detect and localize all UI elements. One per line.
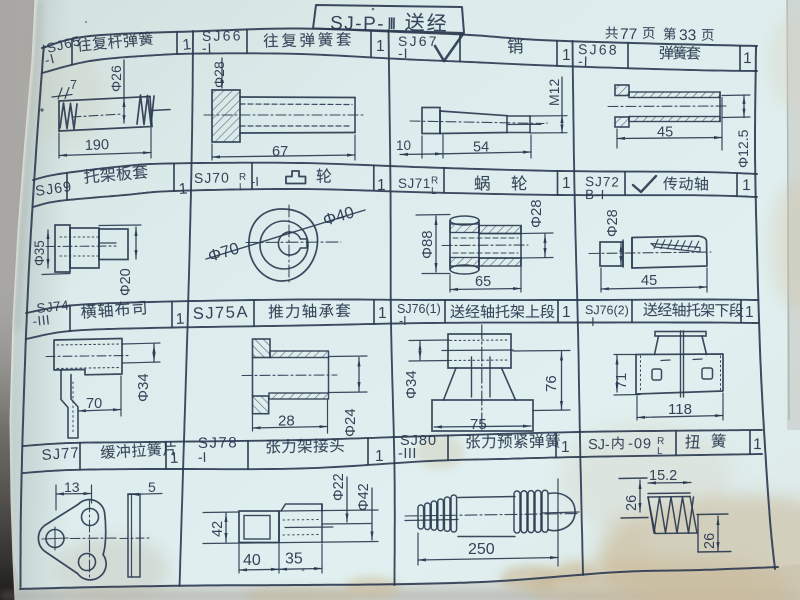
svg-text:1: 1 — [178, 180, 188, 198]
svg-text:SJ71: SJ71 — [398, 176, 431, 191]
svg-text:-I: -I — [202, 40, 213, 56]
svg-text:-I: -I — [398, 45, 409, 61]
svg-text:Φ12.5: Φ12.5 — [735, 129, 751, 168]
svg-text:1: 1 — [377, 177, 386, 194]
svg-text:R: R — [431, 176, 438, 187]
svg-text:Φ35: Φ35 — [32, 240, 47, 266]
svg-text:SJ77: SJ77 — [41, 444, 80, 464]
svg-text:33: 33 — [679, 27, 696, 44]
svg-text:1: 1 — [562, 304, 571, 321]
svg-text:26: 26 — [624, 495, 640, 511]
svg-text:250: 250 — [468, 541, 495, 558]
svg-text:-I: -I — [251, 174, 259, 189]
svg-text:1: 1 — [170, 450, 179, 467]
svg-text:76: 76 — [543, 375, 560, 392]
svg-text:7: 7 — [70, 78, 77, 92]
svg-text:-09: -09 — [628, 436, 652, 452]
svg-text:1: 1 — [182, 36, 192, 54]
svg-text:SJ-P-: SJ-P- — [330, 13, 385, 35]
svg-text:77: 77 — [620, 26, 637, 43]
svg-text:Φ34: Φ34 — [135, 373, 152, 402]
svg-text:1: 1 — [742, 177, 751, 194]
svg-text:1: 1 — [378, 305, 387, 322]
svg-text:L: L — [657, 446, 663, 457]
svg-text:-III: -III — [398, 446, 417, 462]
svg-text:Φ88: Φ88 — [419, 230, 436, 259]
svg-text:1: 1 — [743, 50, 752, 67]
svg-text:35: 35 — [285, 551, 303, 568]
svg-text:13: 13 — [64, 479, 80, 495]
svg-text:Φ42: Φ42 — [356, 483, 372, 511]
svg-text:SJ75A: SJ75A — [193, 303, 250, 323]
svg-text:15.2: 15.2 — [649, 468, 677, 484]
svg-text:L: L — [239, 182, 245, 193]
svg-text:Φ26: Φ26 — [108, 65, 124, 92]
svg-text:54: 54 — [473, 140, 489, 156]
svg-text:1: 1 — [561, 439, 570, 456]
svg-text:SJ-: SJ- — [588, 437, 610, 453]
svg-text:118: 118 — [668, 401, 692, 418]
svg-text:L: L — [431, 186, 437, 197]
svg-text:71: 71 — [614, 373, 630, 389]
svg-text:42: 42 — [210, 521, 226, 537]
svg-text:45: 45 — [657, 125, 673, 141]
svg-text:M12: M12 — [546, 79, 562, 106]
svg-text:45: 45 — [641, 273, 657, 289]
svg-text:5: 5 — [148, 479, 156, 495]
svg-text:-I: -I — [578, 53, 589, 69]
svg-text:Φ28: Φ28 — [605, 209, 621, 237]
svg-text:67: 67 — [272, 144, 288, 160]
svg-text:Φ22: Φ22 — [331, 473, 347, 501]
svg-text:Φ34: Φ34 — [403, 370, 420, 399]
svg-text:70: 70 — [86, 396, 102, 412]
svg-text:Φ24: Φ24 — [342, 408, 359, 437]
svg-text:75: 75 — [470, 416, 487, 433]
svg-text:SJ70: SJ70 — [194, 169, 230, 186]
svg-text:B-I: B-I — [585, 187, 606, 202]
svg-text:1: 1 — [753, 436, 762, 453]
svg-text:40: 40 — [243, 552, 261, 569]
svg-text:1: 1 — [562, 175, 571, 192]
svg-text:1: 1 — [175, 311, 185, 328]
svg-text:Φ20: Φ20 — [118, 268, 134, 296]
svg-text:1: 1 — [376, 38, 385, 55]
svg-text:-I: -I — [399, 314, 407, 328]
svg-text:65: 65 — [475, 274, 491, 290]
svg-text:1: 1 — [745, 304, 754, 321]
svg-text:-I: -I — [198, 449, 207, 465]
svg-text:1: 1 — [375, 448, 384, 465]
svg-text:1: 1 — [562, 47, 571, 64]
svg-text:26: 26 — [702, 533, 718, 549]
svg-text:Φ28: Φ28 — [211, 61, 227, 88]
svg-text:-I: -I — [587, 315, 595, 329]
svg-text:10: 10 — [396, 138, 411, 153]
svg-text:Φ28: Φ28 — [528, 199, 545, 228]
svg-text:28: 28 — [278, 413, 295, 430]
svg-text:-III: -III — [32, 312, 51, 329]
svg-text:190: 190 — [85, 137, 110, 154]
